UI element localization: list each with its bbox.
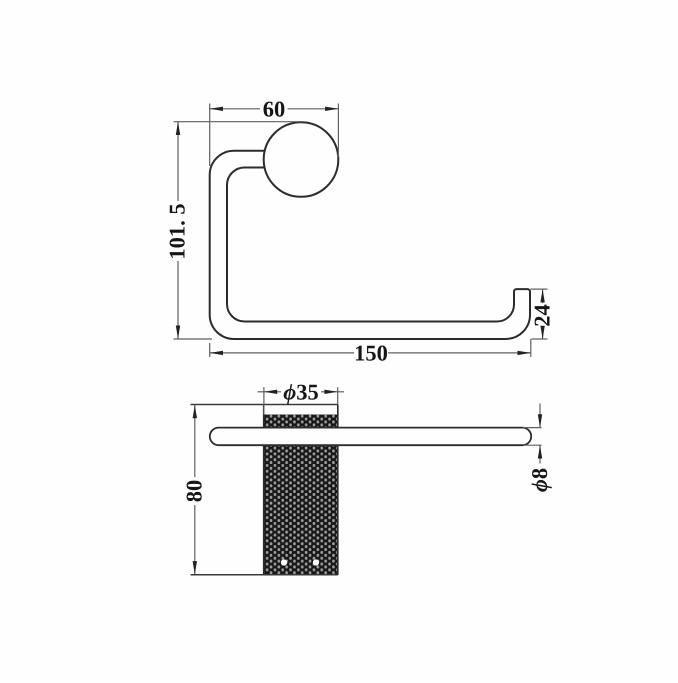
svg-text:150: 150 <box>354 340 388 365</box>
svg-text:ϕ8: ϕ8 <box>527 468 552 492</box>
svg-text:60: 60 <box>263 96 286 121</box>
svg-text:101. 5: 101. 5 <box>165 203 190 259</box>
svg-text:80: 80 <box>182 480 207 503</box>
svg-text:ϕ35: ϕ35 <box>283 379 319 404</box>
svg-text:24: 24 <box>530 304 555 327</box>
